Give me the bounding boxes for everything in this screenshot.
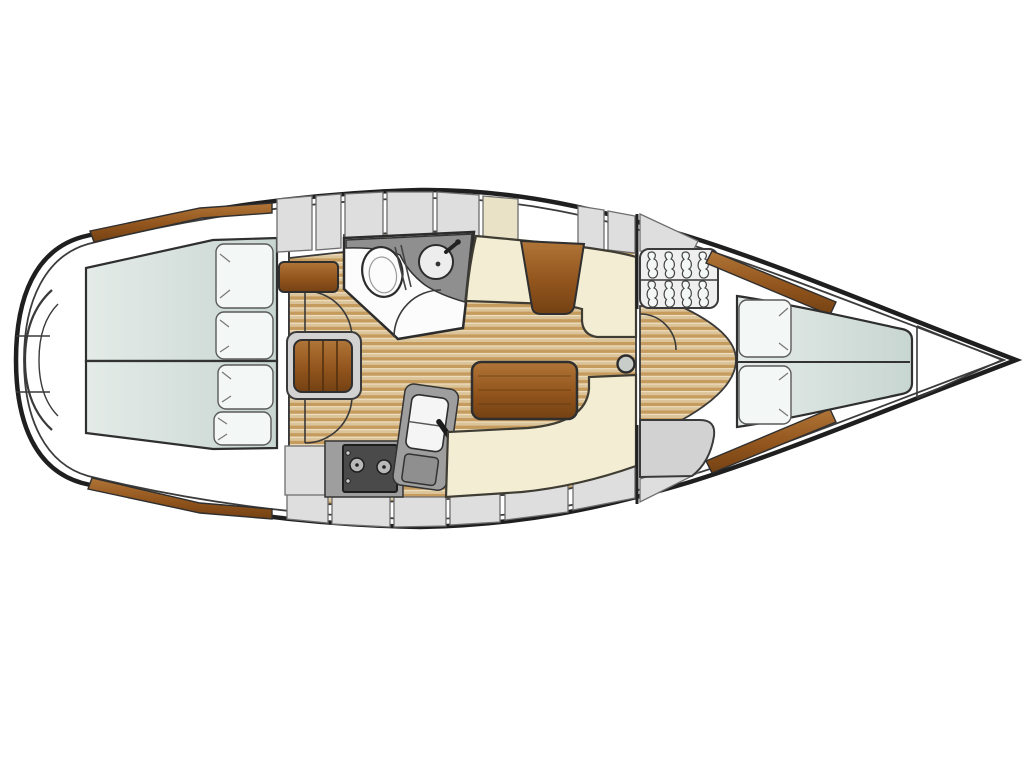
nav-shelf [279,262,338,292]
bottom-locker-panel [394,497,446,527]
mast-post-icon [618,356,635,373]
burner-center [382,465,386,469]
hanging-locker [640,249,718,308]
salon [277,192,636,527]
top-locker-panel [387,192,433,238]
yacht-floorplan-canvas [0,0,1024,768]
top-locker-panel [608,211,635,253]
pillow-icon [218,365,273,409]
hanger-icon [664,281,674,307]
hanger-icon [698,252,708,278]
pillow-icon [214,412,271,445]
pillow-icon [216,244,273,308]
fwd-panel-top [640,214,698,253]
hanger-icon [664,252,674,278]
top-locker-panel [316,194,341,250]
pillow-icon [739,366,791,424]
saloon-table-icon [521,241,584,314]
pillow-icon [216,312,273,359]
forward-cabin [637,214,912,504]
basin-drain [436,262,441,267]
burner-center [355,463,359,467]
yacht-floorplan [0,0,1024,768]
hanger-icon [681,281,691,307]
hanger-icon [647,252,657,278]
stove-knob [346,451,350,455]
hanger-icon [647,281,657,307]
bottom-locker-panel [332,493,390,527]
bottom-locker-panel [450,493,500,525]
pillow-icon [739,300,791,357]
stove-knob [346,479,350,483]
galley-counter-pad [401,453,439,485]
hanger-icon [681,252,691,278]
top-locker-panel [277,196,312,252]
faucet-base [455,239,461,245]
top-locker-panel [483,196,518,241]
galley-side-counter [285,446,325,495]
hanger-icon [698,281,708,307]
